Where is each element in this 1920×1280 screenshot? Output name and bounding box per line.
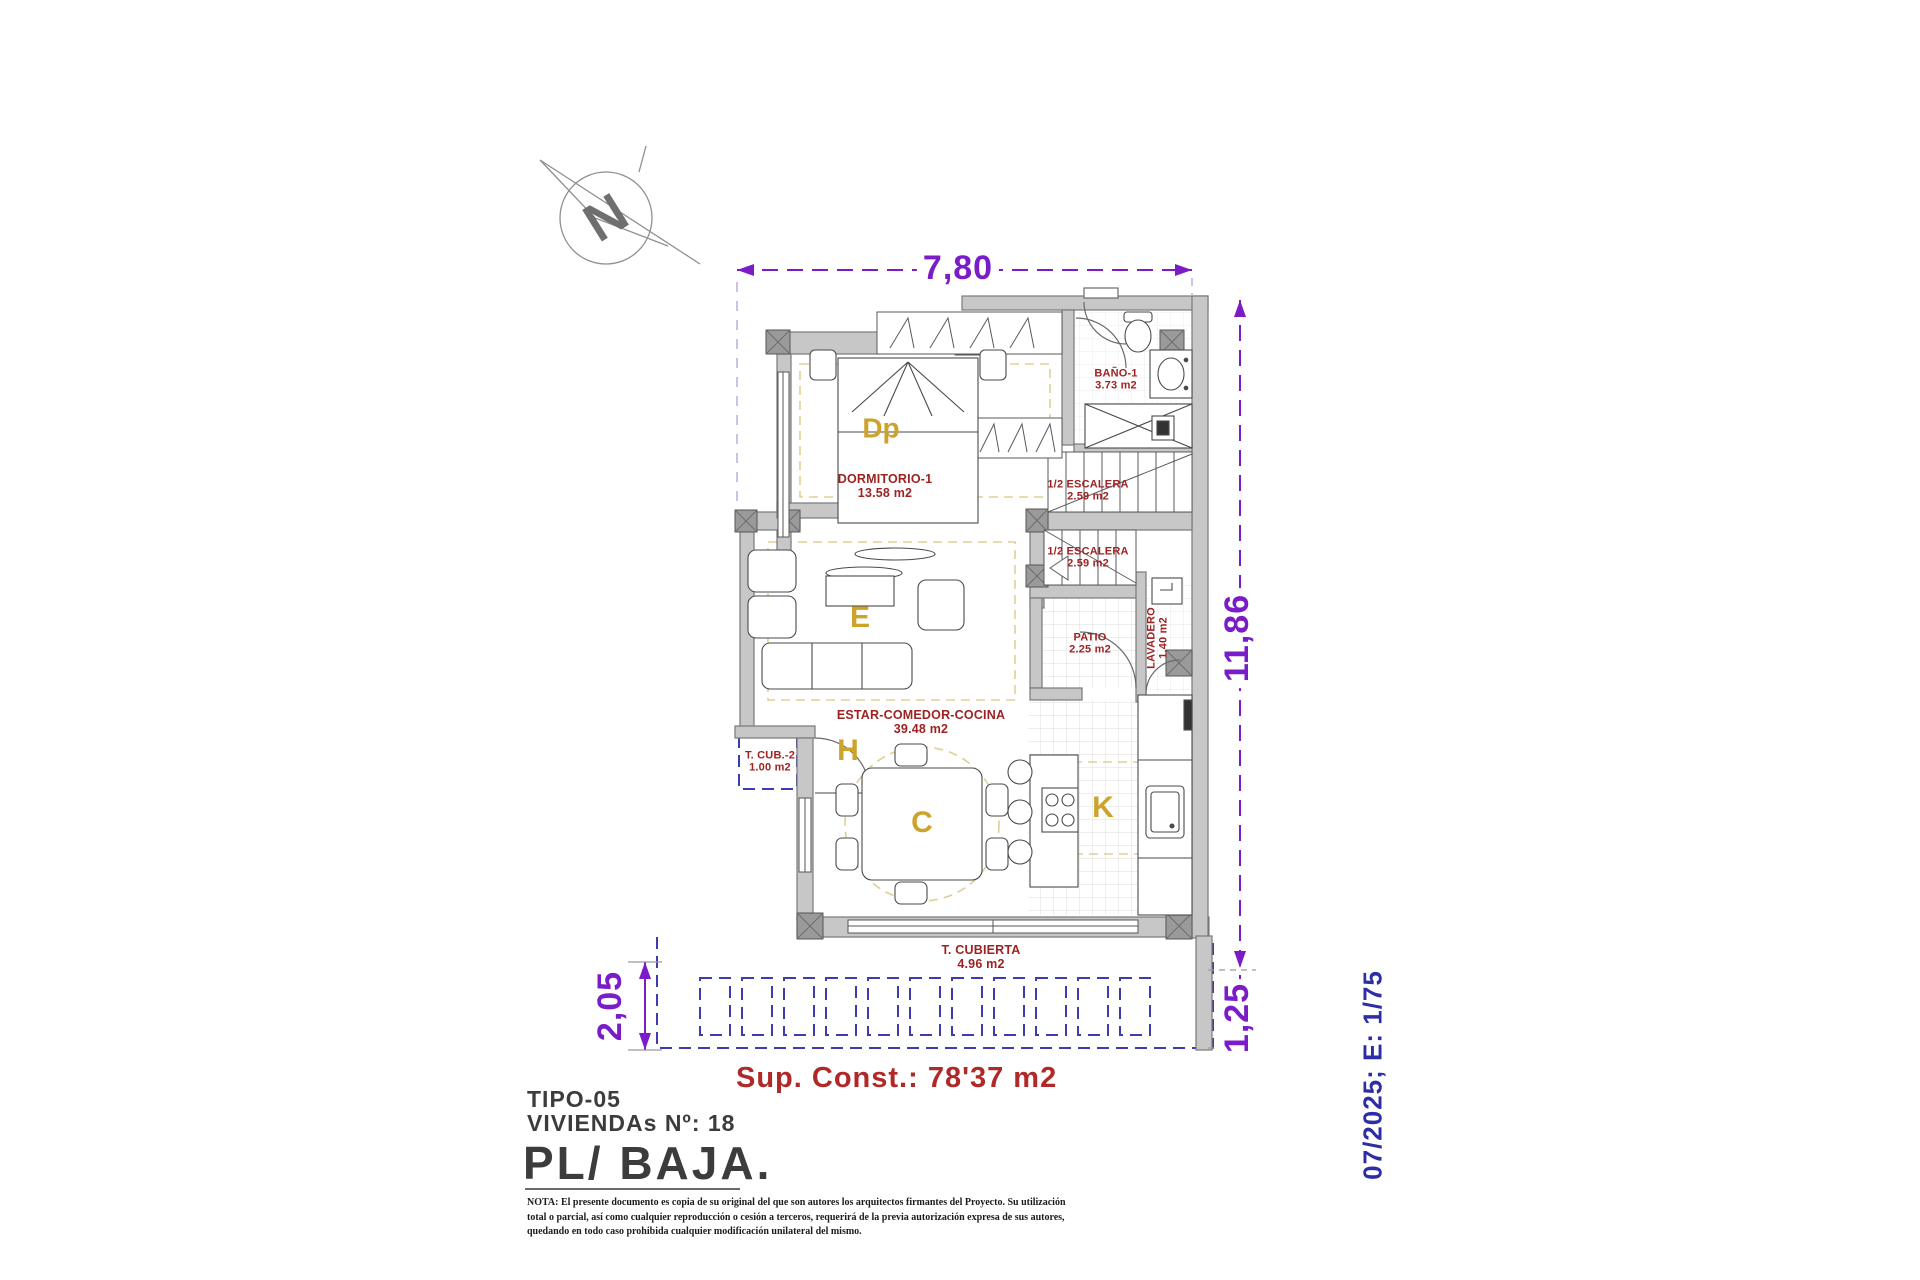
title-viviendas: VIVIENDAs Nº: 18 [527, 1110, 735, 1137]
room-area: 2.25 m2 [1069, 644, 1111, 656]
room-label-patio: PATIO 2.25 m2 [1069, 632, 1111, 657]
room-name: LAVADERO [1146, 607, 1158, 669]
room-name: 1/2 ESCALERA [1047, 546, 1128, 558]
room-label-tcub2: T. CUB.-2 1.00 m2 [745, 750, 795, 775]
room-name: 1/2 ESCALERA [1047, 479, 1128, 491]
dimension-right: 11,86 [1218, 588, 1256, 688]
room-label-bano: BAÑO-1 3.73 m2 [1094, 368, 1137, 393]
room-label-estar: ESTAR-COMEDOR-COCINA 39.48 m2 [837, 708, 1005, 736]
zone-letter-dormitorio: Dp [862, 412, 899, 443]
room-area: 13.58 m2 [838, 486, 933, 500]
room-area: 2.59 m2 [1047, 558, 1128, 570]
room-area: 3.73 m2 [1094, 380, 1137, 392]
room-name: ESTAR-COMEDOR-COCINA [837, 708, 1005, 722]
nota-text: NOTA: El presente documento es copia de … [527, 1196, 1079, 1240]
dimension-bottom-right: 1,25 [1218, 979, 1256, 1057]
zone-letter-hall: H [837, 734, 859, 768]
room-area: 1.40 m2 [1158, 607, 1170, 669]
sup-const-label: Sup. Const.: 78'37 m2 [736, 1062, 1057, 1094]
zone-letter-cocina: K [1092, 791, 1114, 825]
title-underline [525, 1188, 740, 1190]
room-name: BAÑO-1 [1094, 368, 1137, 380]
room-label-escalera-inf: 1/2 ESCALERA 2.59 m2 [1047, 546, 1128, 571]
room-name: T. CUB.-2 [745, 750, 795, 762]
dimension-top: 7,80 [917, 249, 999, 287]
room-name: T. CUBIERTA [941, 943, 1020, 957]
dimension-bottom-left: 2,05 [591, 971, 629, 1041]
room-area: 2.59 m2 [1047, 491, 1128, 503]
room-name: PATIO [1069, 632, 1111, 644]
room-area: 39.48 m2 [837, 722, 1005, 736]
date-scale-label: 07/2025; E: 1/75 [1358, 970, 1387, 1180]
title-tipo: TIPO-05 [527, 1086, 621, 1113]
room-area: 1.00 m2 [745, 762, 795, 774]
room-name: DORMITORIO-1 [838, 472, 933, 486]
floor-plan-sheet: N 7,80 11,86 2,05 1,25 DORMITORIO-1 13.5… [0, 0, 1920, 1280]
zone-letter-estar: E [850, 601, 870, 635]
room-label-lavadero: LAVADERO 1.40 m2 [1146, 607, 1171, 669]
room-label-dormitorio: DORMITORIO-1 13.58 m2 [838, 472, 933, 500]
bedroom-furniture [810, 350, 1006, 579]
zone-letter-comedor: C [911, 806, 933, 840]
title-planta: PL/ BAJA. [523, 1136, 772, 1190]
room-label-tcubierta: T. CUBIERTA 4.96 m2 [941, 943, 1020, 971]
room-area: 4.96 m2 [941, 957, 1020, 971]
lavadero-fixture [1152, 578, 1182, 604]
room-label-escalera-sup: 1/2 ESCALERA 2.59 m2 [1047, 479, 1128, 504]
